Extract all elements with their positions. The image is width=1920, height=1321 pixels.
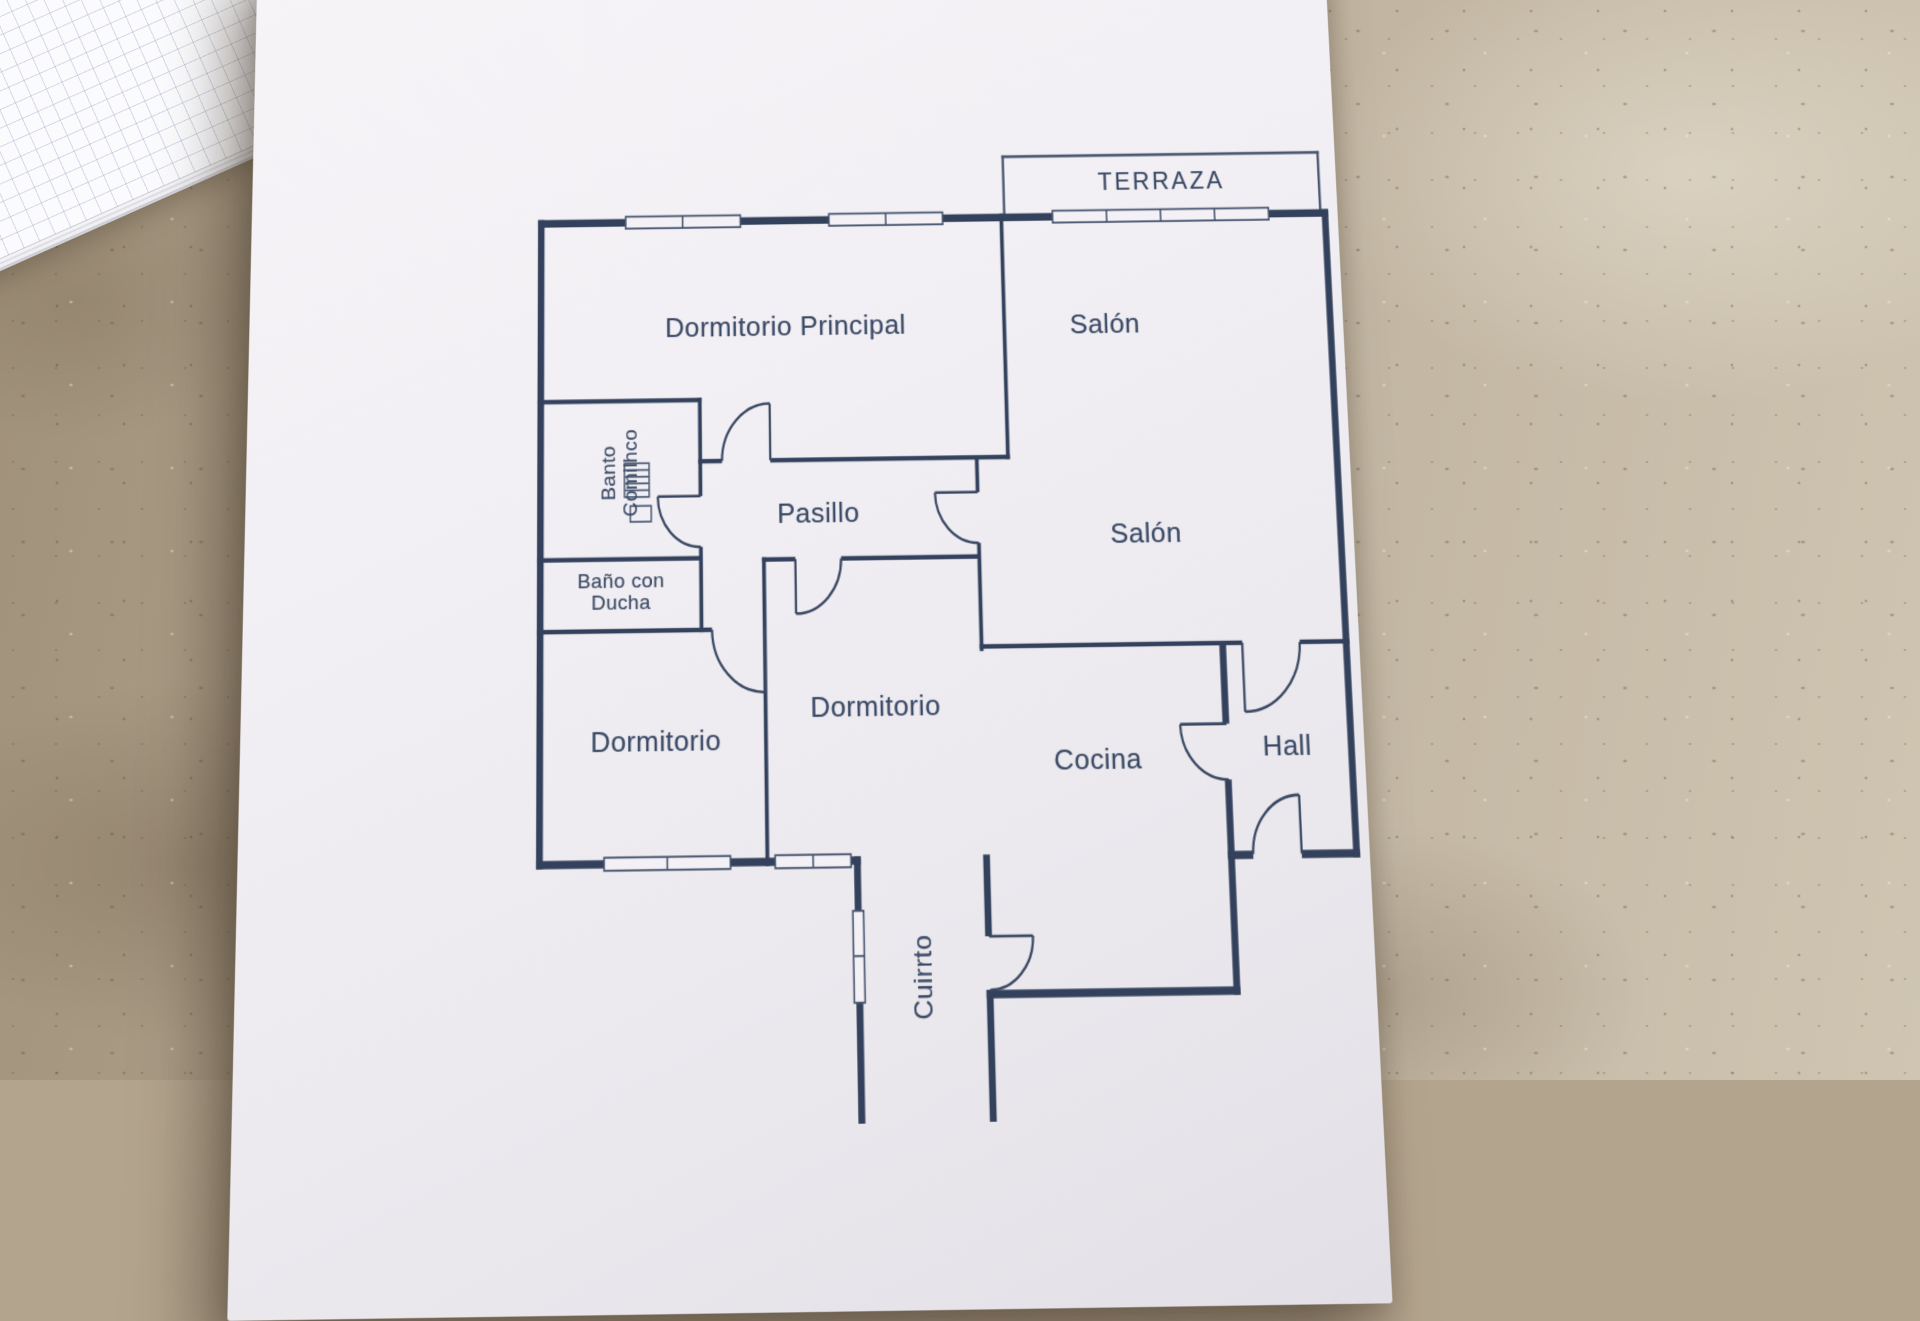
- door-dormitorio-principal: [721, 403, 770, 461]
- room-label-salon-lower: Salón: [1110, 517, 1182, 548]
- room-label-bano-ducha: Baño con Ducha: [577, 571, 664, 617]
- paper-sheet: TERRAZA Dormitorio Principal Salón Salón…: [227, 0, 1392, 1321]
- window: [853, 911, 865, 1003]
- door-bano-1: [658, 496, 701, 547]
- room-label-bano-ducha-line2: Ducha: [591, 593, 651, 617]
- floor-plan: TERRAZA Dormitorio Principal Salón Salón…: [500, 133, 1429, 1129]
- exterior-walls: [535, 209, 1373, 1129]
- window: [829, 212, 943, 226]
- door-entry: [1251, 795, 1302, 854]
- room-label-bano-1-line1: Banto: [598, 445, 620, 500]
- window: [626, 215, 741, 229]
- room-label-cuarto: Cuirrto: [909, 935, 939, 1020]
- window: [775, 854, 851, 868]
- room-label-bano-1: Banto Comilhco: [599, 429, 642, 517]
- door-cocina-hall: [1180, 724, 1229, 780]
- door-cuarto: [989, 936, 1034, 990]
- photo-of-floor-plan: { "floor_plan": { "rooms": { "terraza": …: [0, 0, 1920, 1080]
- room-label-cocina: Cocina: [1054, 742, 1143, 774]
- room-label-terraza: TERRAZA: [1097, 168, 1225, 195]
- window: [604, 856, 730, 871]
- room-label-salon-upper: Salón: [1069, 308, 1140, 338]
- window: [1052, 208, 1269, 223]
- room-label-dormitorio-middle: Dormitorio: [810, 690, 941, 723]
- door-salon: [935, 492, 979, 543]
- room-label-bano-ducha-line1: Baño con: [577, 570, 664, 594]
- room-label-hall: Hall: [1262, 730, 1312, 762]
- interior-walls: [536, 209, 1360, 869]
- floor-plan-drawing: [500, 133, 1429, 1129]
- door-dormitorio-left: [712, 629, 765, 693]
- room-label-bano-1-line2: Comilhco: [620, 429, 642, 517]
- room-label-dormitorio-principal: Dormitorio Principal: [665, 310, 906, 343]
- door-hall-salon: [1242, 642, 1303, 712]
- room-label-dormitorio-left: Dormitorio: [590, 725, 721, 758]
- room-label-pasillo: Pasillo: [777, 497, 860, 528]
- door-dormitorio-middle: [795, 558, 842, 613]
